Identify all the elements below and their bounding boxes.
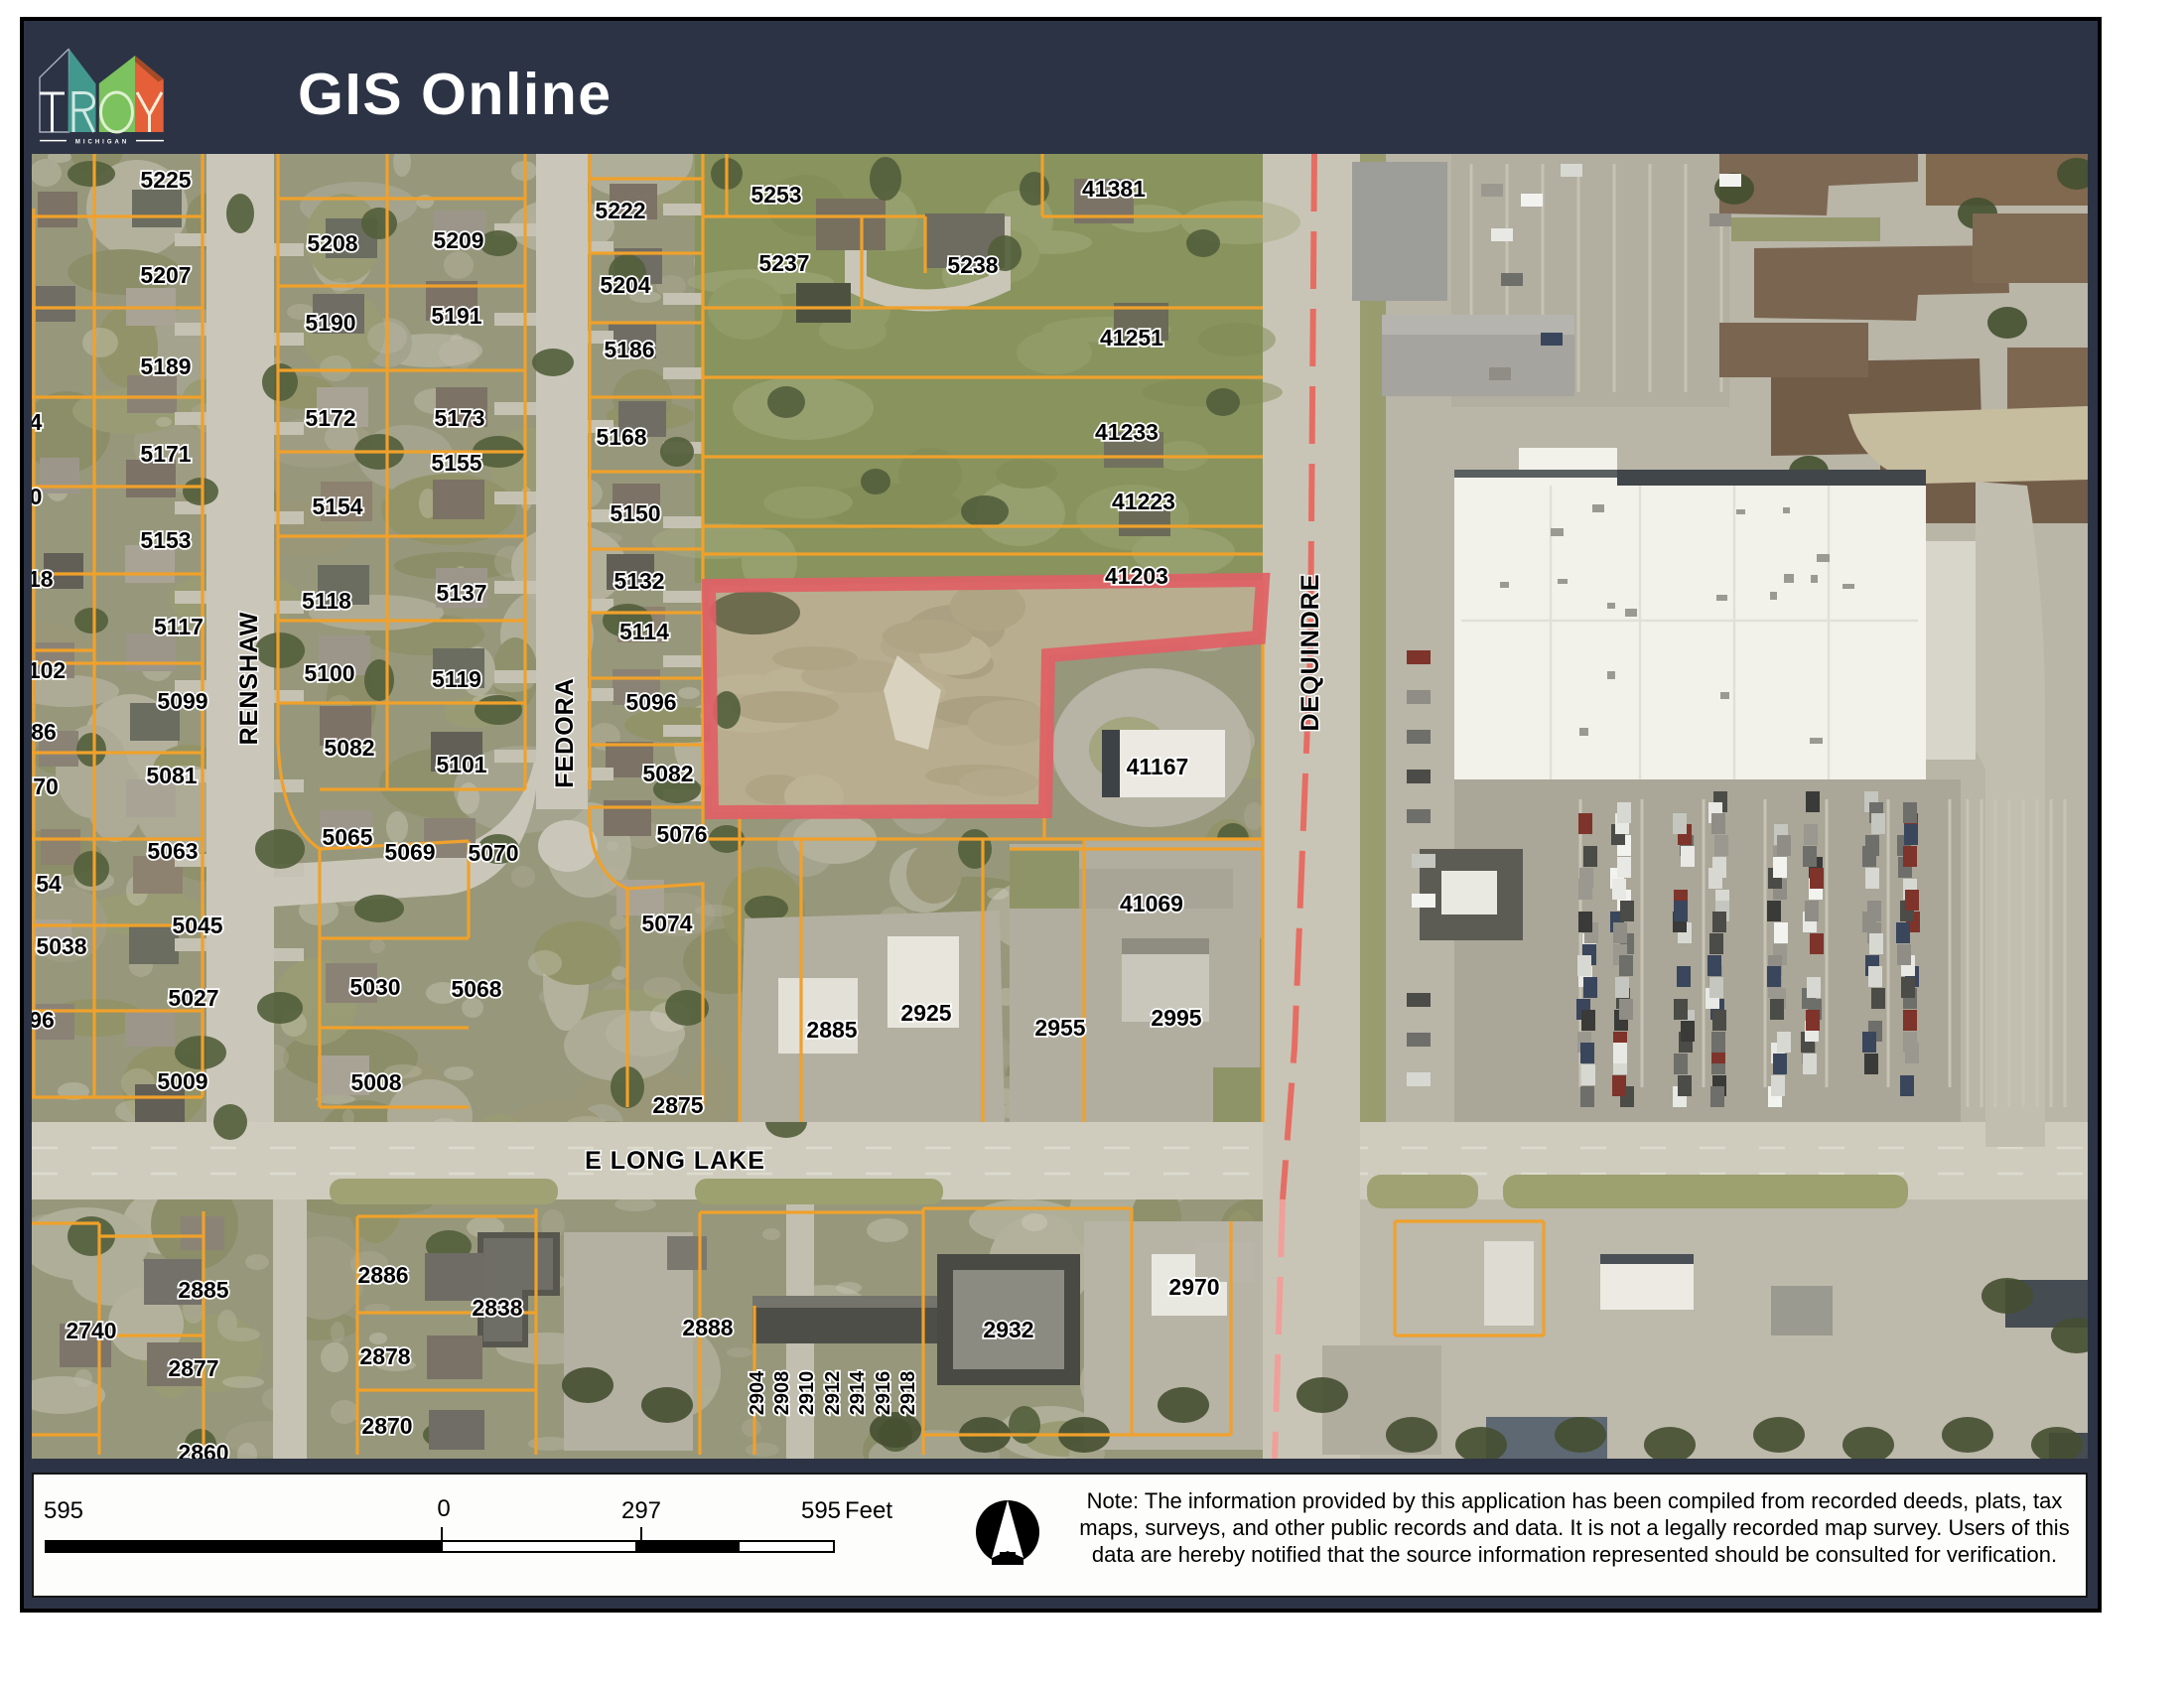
svg-text:5027: 5027 [168,985,218,1011]
svg-text:2908: 2908 [771,1371,793,1416]
svg-text:5189: 5189 [140,353,191,379]
svg-text:2970: 2970 [1168,1274,1219,1300]
svg-text:5045: 5045 [172,913,222,938]
svg-text:0: 0 [32,484,42,509]
svg-text:5065: 5065 [322,824,372,850]
svg-text:5208: 5208 [307,230,357,256]
svg-text:5114: 5114 [619,619,669,644]
svg-text:41203: 41203 [1105,563,1168,589]
svg-text:70: 70 [33,774,59,799]
svg-text:5101: 5101 [436,752,486,777]
svg-text:5137: 5137 [436,580,486,606]
svg-text:5118: 5118 [302,588,351,614]
svg-text:2925: 2925 [900,1000,951,1026]
svg-text:2912: 2912 [822,1371,844,1416]
svg-text:5070: 5070 [468,840,518,866]
svg-text:5168: 5168 [596,424,646,450]
svg-text:5173: 5173 [434,405,484,431]
svg-text:41069: 41069 [1120,891,1183,916]
svg-text:2878: 2878 [359,1343,410,1369]
svg-text:5096: 5096 [625,689,676,715]
svg-text:96: 96 [32,1007,55,1033]
svg-text:2838: 2838 [472,1295,522,1321]
svg-text:5222: 5222 [595,198,645,223]
svg-text:2875: 2875 [652,1092,703,1118]
svg-text:5082: 5082 [324,735,374,761]
svg-text:2885: 2885 [806,1017,857,1043]
svg-text:5155: 5155 [431,450,481,476]
svg-text:2995: 2995 [1151,1005,1201,1031]
svg-text:5099: 5099 [157,688,207,714]
svg-text:41223: 41223 [1112,489,1175,514]
svg-text:4: 4 [32,409,43,435]
svg-text:2885: 2885 [178,1277,228,1303]
svg-text:5009: 5009 [157,1068,207,1094]
svg-text:5207: 5207 [140,262,191,288]
svg-text:102: 102 [32,657,66,683]
svg-text:2918: 2918 [897,1371,919,1416]
svg-text:5030: 5030 [349,974,400,1000]
svg-text:41381: 41381 [1082,176,1146,202]
svg-text:FEDORA: FEDORA [551,677,579,788]
svg-text:5076: 5076 [656,821,707,847]
svg-text:5154: 5154 [312,493,362,519]
svg-text:5190: 5190 [305,310,355,336]
svg-text:5119: 5119 [432,666,481,692]
svg-text:5074: 5074 [641,911,692,936]
svg-text:5191: 5191 [431,303,481,329]
svg-text:2955: 2955 [1034,1015,1085,1041]
svg-text:5117: 5117 [154,614,204,639]
svg-text:5172: 5172 [305,405,355,431]
svg-text:41251: 41251 [1100,325,1163,351]
svg-text:DEQUINDRE: DEQUINDRE [1297,573,1324,731]
svg-text:RENSHAW: RENSHAW [235,612,263,746]
svg-text:5068: 5068 [451,976,501,1002]
svg-text:5150: 5150 [610,500,660,526]
svg-text:2888: 2888 [682,1315,733,1340]
svg-text:2904: 2904 [747,1370,768,1415]
svg-text:2877: 2877 [168,1355,218,1381]
svg-text:5186: 5186 [604,337,654,362]
svg-text:5238: 5238 [947,252,998,278]
svg-text:2870: 2870 [361,1413,412,1439]
svg-text:5171: 5171 [140,441,191,467]
svg-text:41167: 41167 [1127,754,1189,779]
svg-text:E LONG LAKE: E LONG LAKE [585,1147,765,1175]
svg-text:5082: 5082 [642,761,693,786]
svg-text:5237: 5237 [758,250,809,276]
svg-text:5063: 5063 [147,838,198,864]
svg-text:5204: 5204 [600,272,650,298]
svg-text:5132: 5132 [614,568,664,594]
svg-text:5081: 5081 [146,763,197,788]
svg-text:2886: 2886 [357,1262,408,1288]
svg-text:118: 118 [32,566,54,592]
svg-text:86: 86 [32,719,57,745]
svg-text:41233: 41233 [1095,419,1159,445]
svg-text:5038: 5038 [36,933,86,959]
svg-text:54: 54 [36,871,62,897]
svg-text:5209: 5209 [433,227,483,253]
svg-text:2910: 2910 [796,1371,818,1416]
svg-text:5225: 5225 [140,167,191,193]
svg-text:MICHIGAN: MICHIGAN [75,140,129,146]
svg-text:2914: 2914 [847,1370,869,1415]
svg-text:2932: 2932 [983,1317,1033,1342]
svg-text:5008: 5008 [350,1069,401,1095]
svg-text:5153: 5153 [140,527,191,553]
svg-text:2740: 2740 [66,1318,116,1343]
svg-text:5253: 5253 [751,182,801,208]
svg-text:2860: 2860 [178,1440,228,1459]
svg-text:5100: 5100 [304,660,354,686]
svg-text:2916: 2916 [873,1371,894,1416]
svg-text:5069: 5069 [384,839,435,865]
